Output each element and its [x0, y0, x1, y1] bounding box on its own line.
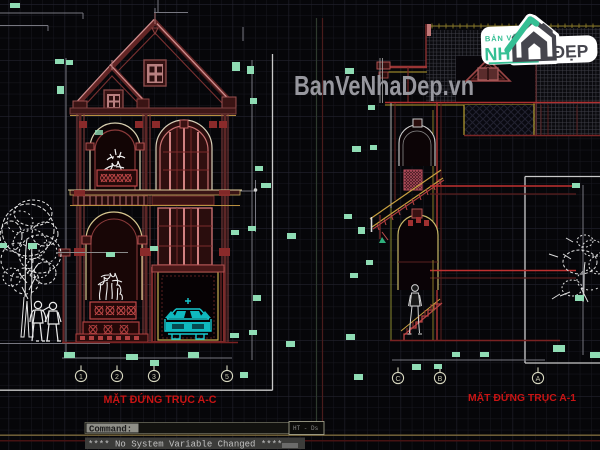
svg-text:HT - Ds: HT - Ds	[293, 425, 319, 432]
svg-text:BanVeNhaDep.vn: BanVeNhaDep.vn	[294, 70, 474, 101]
svg-text:B: B	[438, 376, 443, 383]
svg-text:Command:: Command:	[89, 425, 132, 435]
svg-text:1: 1	[79, 374, 83, 381]
svg-text:C: C	[395, 376, 400, 383]
svg-text:**** No System Variable Change: **** No System Variable Changed ****	[88, 440, 282, 450]
svg-text:A: A	[536, 376, 541, 383]
svg-text:2: 2	[115, 374, 119, 381]
svg-text:MẶT ĐỨNG TRỤC A-C: MẶT ĐỨNG TRỤC A-C	[104, 393, 217, 406]
svg-text:MẶT ĐỨNG TRỤC A-1: MẶT ĐỨNG TRỤC A-1	[468, 391, 576, 404]
svg-text:5: 5	[225, 374, 229, 381]
svg-text:3: 3	[152, 374, 156, 381]
svg-text:ĐẸP: ĐẸP	[552, 41, 589, 62]
